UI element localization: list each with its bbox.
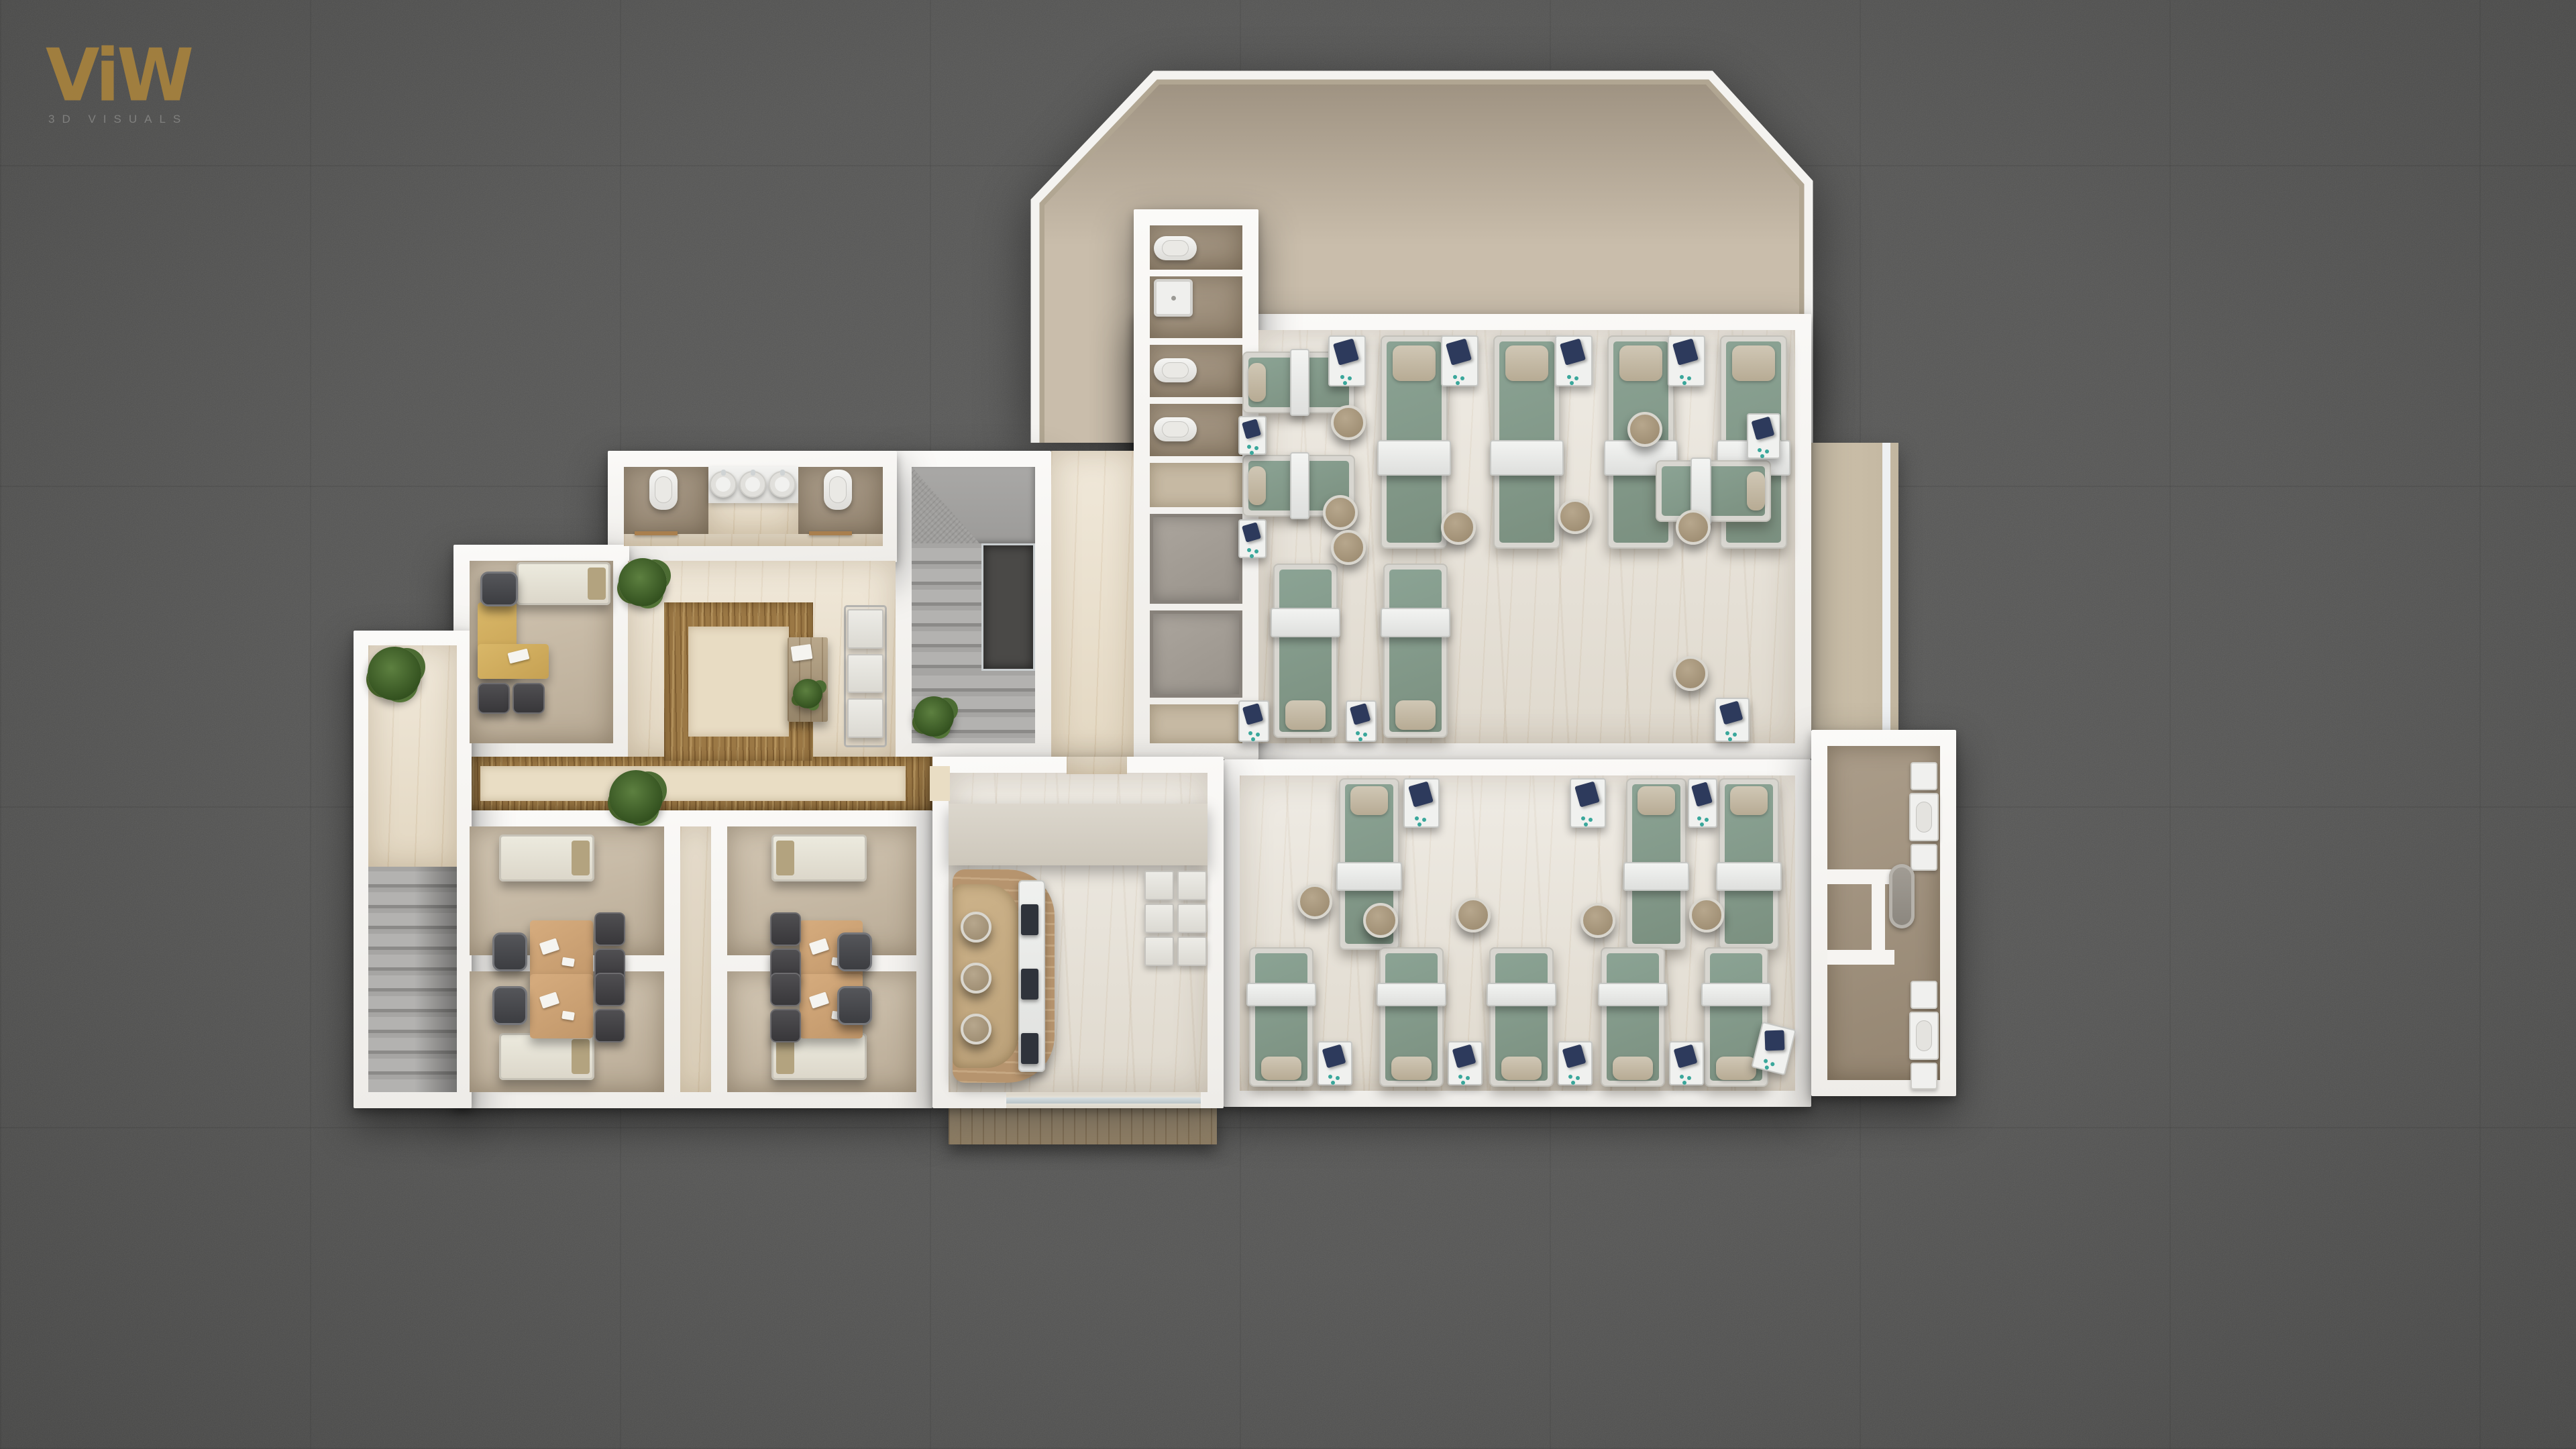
obt xyxy=(1598,983,1668,1006)
dots xyxy=(1764,1059,1768,1064)
stool xyxy=(1297,884,1332,919)
pil xyxy=(1716,1057,1757,1080)
obt xyxy=(1490,440,1563,476)
bed-side-table xyxy=(1747,413,1780,459)
bed-side-table xyxy=(1318,1041,1352,1085)
office-chair xyxy=(492,932,527,971)
guest-chair xyxy=(513,683,545,714)
toilet xyxy=(824,470,852,510)
guest-chair xyxy=(770,912,801,946)
pil xyxy=(1393,345,1435,381)
stool xyxy=(1558,499,1593,534)
bed-side-table xyxy=(1238,700,1269,742)
obt xyxy=(1290,349,1310,416)
reception-monitor xyxy=(1021,969,1038,1000)
office-chair xyxy=(480,572,518,606)
bed-side-table xyxy=(1238,416,1267,455)
plant xyxy=(368,647,421,700)
floorplan-render: ViW 3D VISUALS xyxy=(0,0,2576,1449)
obt xyxy=(1377,983,1447,1006)
plant xyxy=(609,770,663,824)
wc-fixture xyxy=(1911,844,1937,871)
navy xyxy=(1333,339,1359,366)
pil xyxy=(1730,786,1768,815)
stool xyxy=(1456,898,1491,932)
sink xyxy=(769,471,796,498)
dots xyxy=(1328,1075,1332,1079)
pil xyxy=(1248,466,1266,505)
wc-fixture xyxy=(1911,1063,1937,1089)
obt xyxy=(1487,983,1557,1006)
logo-subtitle: 3D VISUALS xyxy=(48,113,191,126)
dots xyxy=(1415,816,1419,820)
obt xyxy=(1623,862,1689,891)
toilet xyxy=(1154,417,1197,441)
dots xyxy=(1458,1075,1462,1079)
stool xyxy=(1363,903,1398,938)
navy xyxy=(1322,1044,1346,1067)
desk-papers xyxy=(561,957,575,967)
dots xyxy=(1248,731,1252,735)
pil xyxy=(1395,700,1436,730)
stool xyxy=(1441,510,1476,545)
hospital-bed xyxy=(1379,947,1444,1087)
dots xyxy=(1581,816,1585,820)
toilet xyxy=(1154,358,1197,382)
bed-side-table xyxy=(1328,335,1366,386)
pil xyxy=(1285,700,1326,730)
pil xyxy=(1501,1057,1542,1080)
wc-fixture xyxy=(1911,762,1937,790)
pil xyxy=(1619,345,1662,381)
pil xyxy=(1638,786,1676,815)
hospital-bed xyxy=(1626,778,1686,950)
stool xyxy=(1676,510,1711,545)
dots xyxy=(1568,1075,1572,1079)
dots xyxy=(1680,375,1684,379)
dots xyxy=(1758,448,1762,452)
bed-side-table xyxy=(1669,1041,1704,1085)
navy xyxy=(1408,782,1434,808)
navy xyxy=(1242,703,1264,725)
xpil xyxy=(588,568,606,600)
pil xyxy=(1747,472,1765,511)
wc-fixture xyxy=(1909,1012,1939,1060)
stool xyxy=(1580,903,1615,938)
pil xyxy=(1732,345,1774,381)
dots xyxy=(1247,548,1251,552)
exam-bed xyxy=(499,1033,594,1080)
lobby-waiting-chair xyxy=(1177,904,1207,933)
consult-desk xyxy=(530,974,593,1038)
bed-side-table xyxy=(1346,700,1377,742)
dots xyxy=(1453,375,1457,379)
hospital-bed xyxy=(1273,563,1338,738)
stool xyxy=(1331,405,1366,440)
reception-monitor xyxy=(1021,904,1038,935)
navy xyxy=(1674,1044,1698,1067)
navy xyxy=(1751,417,1774,441)
office-chair xyxy=(837,932,872,971)
pil xyxy=(1350,786,1389,815)
reception-stool xyxy=(961,912,991,943)
bed-side-table xyxy=(1558,1041,1593,1085)
navy xyxy=(1242,419,1261,439)
plant xyxy=(914,696,954,737)
shower xyxy=(1154,279,1193,317)
dots xyxy=(1340,375,1344,379)
bed-side-table xyxy=(1238,519,1267,558)
hospital-bed xyxy=(1656,460,1771,522)
navy xyxy=(1691,782,1713,808)
guest-chair xyxy=(478,683,510,714)
xpil xyxy=(776,841,794,875)
bench-cushion xyxy=(847,698,883,738)
stool xyxy=(1689,898,1724,932)
pil xyxy=(1261,1057,1302,1080)
guest-chair xyxy=(594,973,625,1006)
navy xyxy=(1350,703,1371,725)
dots xyxy=(1697,816,1701,820)
navy xyxy=(1765,1030,1785,1051)
stool xyxy=(1627,412,1662,447)
guest-chair xyxy=(770,973,801,1006)
toilet xyxy=(1154,236,1197,260)
lobby-waiting-chair xyxy=(1177,871,1207,900)
stool xyxy=(1323,495,1358,530)
dots xyxy=(1356,731,1360,735)
dots xyxy=(1680,1075,1684,1079)
bed-side-table xyxy=(1555,335,1593,386)
wc-fixture xyxy=(1911,981,1937,1009)
dots xyxy=(1567,375,1571,379)
obt xyxy=(1246,983,1317,1006)
desk-papers xyxy=(561,1011,575,1021)
stool xyxy=(1673,656,1708,691)
lobby-waiting-chair xyxy=(1177,936,1207,966)
tub xyxy=(1889,864,1915,928)
guest-chair xyxy=(770,1009,801,1042)
guest-chair xyxy=(594,1009,625,1042)
hospital-bed xyxy=(1601,947,1665,1087)
sink xyxy=(739,471,766,498)
stool xyxy=(1331,530,1366,565)
lobby-waiting-chair xyxy=(1144,871,1174,900)
obt xyxy=(1271,608,1341,637)
navy xyxy=(1672,339,1699,366)
navy xyxy=(1574,782,1600,808)
hospital-bed xyxy=(1249,947,1313,1087)
bed-side-table xyxy=(1715,698,1750,742)
pil xyxy=(1613,1057,1654,1080)
bed-side-table xyxy=(1448,1041,1483,1085)
exam-bed xyxy=(499,835,594,881)
navy xyxy=(1446,339,1472,366)
hospital-bed xyxy=(1493,335,1560,549)
reception-stool xyxy=(961,1014,991,1044)
xpil xyxy=(776,1039,794,1074)
navy xyxy=(1452,1044,1477,1067)
hospital-bed xyxy=(1381,335,1448,549)
lobby-waiting-chair xyxy=(1144,904,1174,933)
dots xyxy=(1247,445,1251,449)
xpil xyxy=(572,841,590,875)
bench-cushion xyxy=(847,654,883,694)
reception-monitor xyxy=(1021,1033,1038,1064)
logo-title: ViW xyxy=(46,43,191,108)
hospital-bed xyxy=(1719,778,1779,950)
viw-logo: ViW 3D VISUALS xyxy=(46,44,191,126)
exam-bed xyxy=(517,562,610,605)
obt xyxy=(1381,608,1451,637)
bench-cushion xyxy=(847,609,883,649)
navy xyxy=(1560,339,1586,366)
hospital-bed xyxy=(1489,947,1554,1087)
bed-side-table xyxy=(1570,778,1606,828)
toilet xyxy=(649,470,678,510)
dots xyxy=(1725,731,1729,735)
plant xyxy=(619,558,667,606)
wc-fixture xyxy=(1909,793,1939,841)
office-chair xyxy=(837,986,872,1025)
obt xyxy=(1290,452,1310,519)
obt xyxy=(1716,862,1782,891)
xpil xyxy=(572,1039,590,1074)
hospital-bed xyxy=(1383,563,1448,738)
navy xyxy=(1562,1044,1587,1067)
obt xyxy=(1336,862,1402,891)
obt xyxy=(1701,983,1772,1006)
furniture-layer xyxy=(0,0,2576,1449)
bed-side-table xyxy=(1688,778,1717,828)
sink xyxy=(710,471,737,498)
pil xyxy=(1248,363,1266,402)
bed-side-table xyxy=(1403,778,1440,828)
bed-side-table xyxy=(1441,335,1479,386)
guest-chair xyxy=(594,912,625,946)
plant xyxy=(793,679,822,708)
exam-bed xyxy=(771,835,867,881)
reception-stool xyxy=(961,963,991,994)
pil xyxy=(1505,345,1548,381)
navy xyxy=(1242,522,1261,542)
obt xyxy=(1377,440,1450,476)
pil xyxy=(1391,1057,1432,1080)
office-chair xyxy=(492,986,527,1025)
bed-side-table xyxy=(1668,335,1705,386)
lobby-waiting-chair xyxy=(1144,936,1174,966)
navy xyxy=(1719,700,1743,724)
